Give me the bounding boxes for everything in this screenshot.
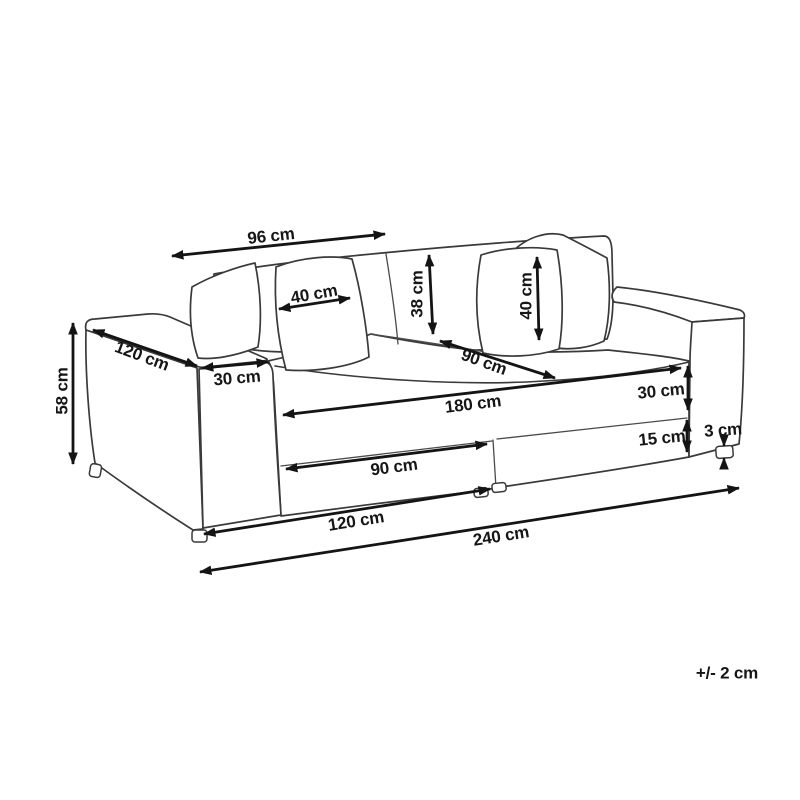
sofa-foot-front-left — [192, 530, 207, 542]
sofa-pillow-front-left — [275, 257, 369, 370]
sofa-dimension-diagram: 96 cm 40 cm 38 cm 40 cm 120 cm 30 cm 90 … — [0, 0, 800, 800]
dimension-label-back-pillow-height: 40 cm — [517, 272, 536, 319]
dimension-label-overall-width: 240 cm — [472, 522, 531, 550]
dimension-label-leg-height: 3 cm — [703, 419, 742, 441]
arrow-back-pillow-height — [537, 257, 539, 340]
dimension-label-back-cushion-height: 38 cm — [408, 270, 427, 317]
sofa-foot-front-right — [716, 445, 734, 458]
sofa-right-armrest-top — [612, 287, 744, 322]
diagram-canvas: 96 cm 40 cm 38 cm 40 cm 120 cm 30 cm 90 … — [0, 0, 800, 800]
dimension-label-overall-height: 58 cm — [53, 367, 72, 414]
sofa-foot-left-outer — [89, 463, 102, 478]
sofa-foot-middle-right — [492, 482, 507, 492]
sofa-pillow-back-left — [190, 263, 260, 359]
tolerance-note: +/- 2 cm — [696, 664, 758, 683]
dimension-label-half-width: 120 cm — [327, 507, 386, 535]
